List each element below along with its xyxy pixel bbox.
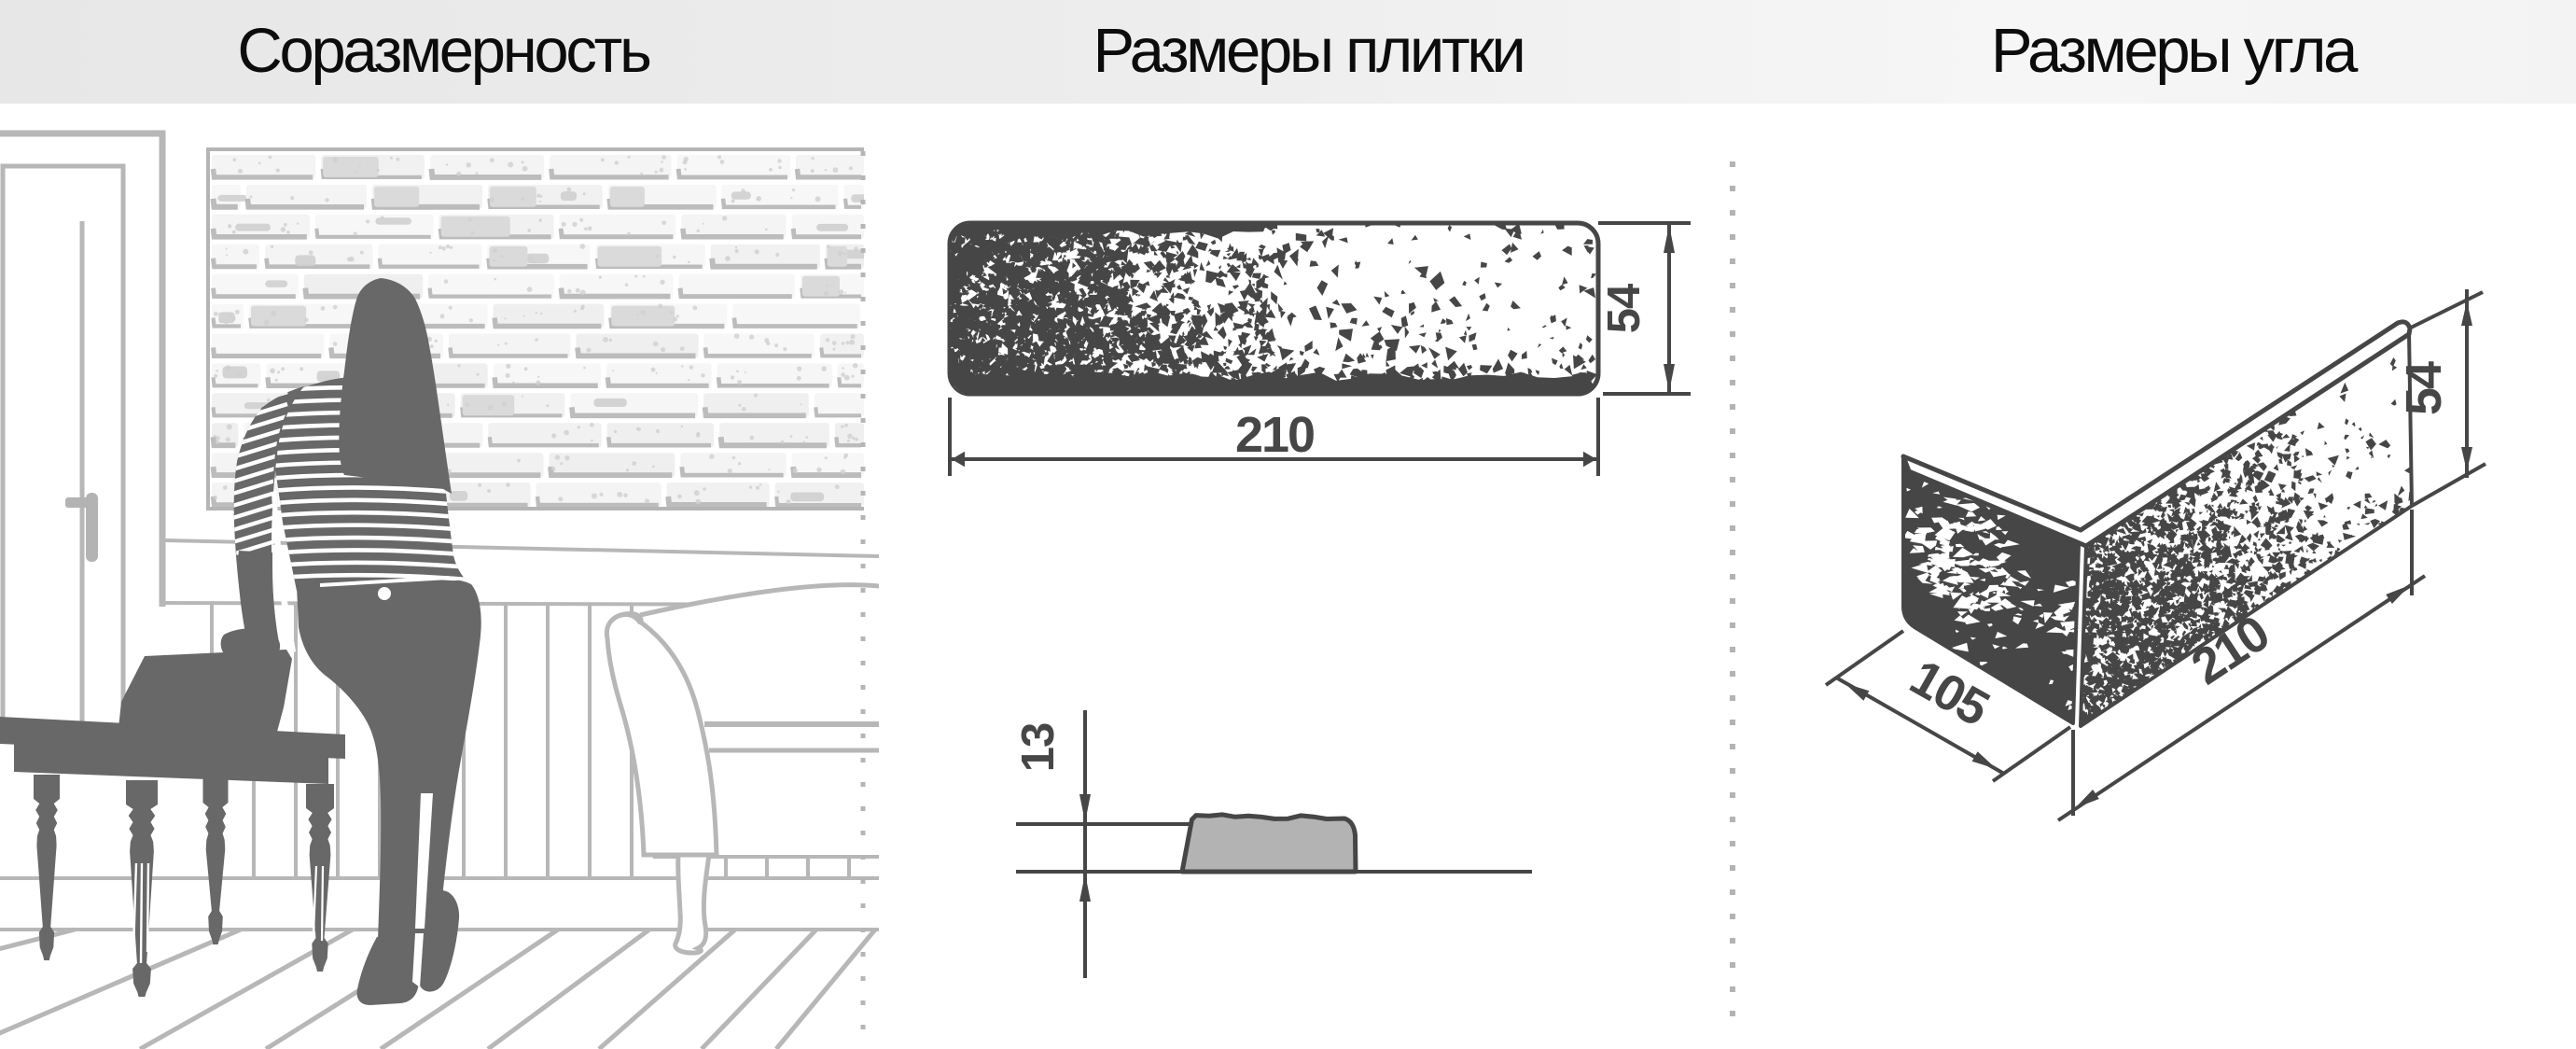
svg-text:Размеры угла: Размеры угла (1991, 16, 2359, 86)
svg-text:210: 210 (1235, 407, 1314, 463)
svg-text:13: 13 (1013, 723, 1064, 773)
svg-text:54: 54 (2396, 361, 2452, 415)
svg-text:Соразмерность: Соразмерность (237, 16, 650, 86)
svg-text:54: 54 (1599, 284, 1650, 333)
svg-text:Размеры плитки: Размеры плитки (1093, 16, 1523, 86)
